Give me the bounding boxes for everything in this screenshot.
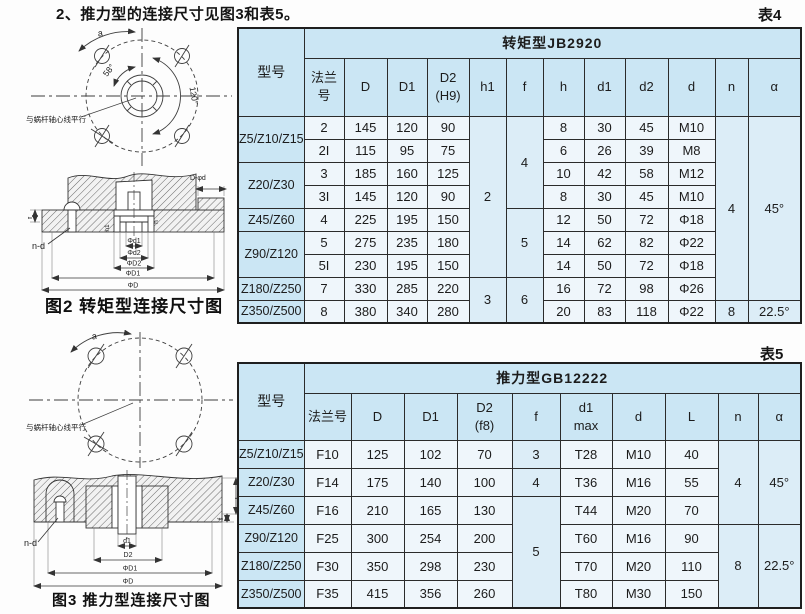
column-header: h bbox=[543, 58, 584, 116]
data-cell: 90 bbox=[665, 524, 718, 552]
data-cell: 82 bbox=[625, 231, 668, 254]
data-cell: 125 bbox=[427, 162, 469, 185]
column-header: α bbox=[758, 393, 801, 440]
data-cell: 4 bbox=[304, 208, 344, 231]
data-cell: T80 bbox=[560, 580, 612, 608]
data-cell: 26 bbox=[584, 139, 625, 162]
figure2-flange-face-diagram: a 58° 120° 与蜗杆轴心线平行 bbox=[25, 26, 237, 168]
column-header: n bbox=[715, 58, 748, 116]
column-header: D1 bbox=[387, 58, 427, 116]
data-cell: 30 bbox=[584, 116, 625, 139]
worm-axis-note: 与蜗杆轴心线平行 bbox=[26, 114, 86, 124]
data-cell: 195 bbox=[387, 254, 427, 277]
column-header: L bbox=[665, 393, 718, 440]
column-header: d bbox=[668, 58, 715, 116]
table-row: Z5/Z10/Z152145120902483045M10445° bbox=[238, 116, 801, 139]
model-cell: Z45/Z60 bbox=[238, 496, 304, 524]
data-cell: M12 bbox=[668, 162, 715, 185]
dim-D1-label: ΦD1 bbox=[126, 271, 141, 278]
note-leader-line bbox=[81, 403, 133, 425]
document-page: 2、推力型的连接尺寸见图3和表5。 表4 表5 bbox=[0, 0, 805, 614]
spigot-step-label: D-φd bbox=[190, 175, 206, 182]
data-cell: 150 bbox=[427, 254, 469, 277]
data-cell: 72 bbox=[625, 208, 668, 231]
model-cell: Z5/Z10/Z15 bbox=[238, 440, 304, 468]
data-cell: M20 bbox=[612, 552, 665, 580]
column-header: D1 bbox=[404, 393, 457, 440]
data-cell: 45° bbox=[758, 440, 801, 524]
data-cell: Φ22 bbox=[668, 300, 715, 323]
data-cell: 340 bbox=[387, 300, 427, 323]
data-cell: 150 bbox=[427, 208, 469, 231]
worm-axis-note: 与蜗杆轴心线平行 bbox=[26, 422, 86, 432]
n-d-label: n-d bbox=[24, 538, 37, 548]
data-cell: M30 bbox=[612, 580, 665, 608]
dimension-a-label: a bbox=[96, 28, 104, 39]
data-cell: 10 bbox=[543, 162, 584, 185]
model-cell: Z180/Z250 bbox=[238, 277, 304, 300]
note-leader-line bbox=[81, 98, 136, 117]
data-cell: 90 bbox=[427, 185, 469, 208]
data-cell: 100 bbox=[457, 468, 512, 496]
data-cell: 55 bbox=[665, 468, 718, 496]
data-cell: 195 bbox=[387, 208, 427, 231]
data-cell: M16 bbox=[612, 524, 665, 552]
data-cell: 70 bbox=[665, 496, 718, 524]
model-cell: Z90/Z120 bbox=[238, 231, 304, 277]
data-cell: 125 bbox=[351, 440, 404, 468]
data-cell: 275 bbox=[344, 231, 387, 254]
data-cell: 200 bbox=[457, 524, 512, 552]
table4-tag: 表4 bbox=[758, 4, 781, 25]
model-cell: Z350/Z500 bbox=[238, 300, 304, 323]
h1-dim-label: h1 bbox=[104, 224, 111, 232]
dim-D2-label: D2 bbox=[124, 552, 133, 559]
page-title: 2、推力型的连接尺寸见图3和表5。 bbox=[56, 3, 300, 24]
data-cell: 260 bbox=[457, 580, 512, 608]
data-cell: 4 bbox=[512, 468, 560, 496]
data-cell: 5 bbox=[304, 231, 344, 254]
dim-D2-label: ΦD2 bbox=[127, 261, 142, 268]
bolt-hole-icon bbox=[84, 432, 108, 456]
data-cell: 165 bbox=[404, 496, 457, 524]
data-cell: 300 bbox=[351, 524, 404, 552]
data-cell: 42 bbox=[584, 162, 625, 185]
data-cell: 40 bbox=[665, 440, 718, 468]
data-cell: 4 bbox=[506, 116, 543, 208]
data-cell: 280 bbox=[427, 300, 469, 323]
data-cell: 20 bbox=[543, 300, 584, 323]
data-cell: 75 bbox=[427, 139, 469, 162]
data-cell: 130 bbox=[457, 496, 512, 524]
data-cell: 415 bbox=[351, 580, 404, 608]
data-cell: 298 bbox=[404, 552, 457, 580]
data-cell: T70 bbox=[560, 552, 612, 580]
spigot-step bbox=[198, 198, 224, 210]
data-cell: 4 bbox=[715, 116, 748, 300]
data-cell: Φ22 bbox=[668, 231, 715, 254]
data-cell: Φ18 bbox=[668, 208, 715, 231]
table5-tag: 表5 bbox=[760, 343, 783, 364]
data-cell: Φ26 bbox=[668, 277, 715, 300]
data-cell: 98 bbox=[625, 277, 668, 300]
angle-58-arc bbox=[114, 67, 135, 86]
model-cell: Z20/Z30 bbox=[238, 468, 304, 496]
figure3-caption: 图3 推力型连接尺寸图 bbox=[52, 589, 211, 610]
bearing-block-left bbox=[86, 486, 112, 528]
column-header: f bbox=[512, 393, 560, 440]
column-header: d1 bbox=[584, 58, 625, 116]
data-cell: F10 bbox=[304, 440, 351, 468]
data-cell: 3 bbox=[304, 162, 344, 185]
bolt-hole-icon bbox=[176, 344, 192, 368]
data-cell: 220 bbox=[427, 277, 469, 300]
data-cell: 254 bbox=[404, 524, 457, 552]
data-cell: 230 bbox=[457, 552, 512, 580]
model-cell: Z20/Z30 bbox=[238, 162, 304, 208]
data-cell: T60 bbox=[560, 524, 612, 552]
data-cell: 22.5° bbox=[748, 300, 801, 323]
data-cell: 12 bbox=[543, 208, 584, 231]
figure3-flange-face-diagram: a 与蜗杆轴心线平行 bbox=[25, 330, 237, 470]
data-cell: 115 bbox=[344, 139, 387, 162]
data-cell: 50 bbox=[584, 254, 625, 277]
model-cell: Z45/Z60 bbox=[238, 208, 304, 231]
dim-D1-label: ΦD1 bbox=[123, 566, 138, 573]
figure3-section-diagram: d1 D2 ΦD1 ΦD L f n-d bbox=[22, 470, 244, 590]
figure2-caption: 图2 转矩型连接尺寸图 bbox=[45, 292, 223, 317]
data-cell: T28 bbox=[560, 440, 612, 468]
data-cell: 72 bbox=[584, 277, 625, 300]
column-header: h1 bbox=[469, 58, 506, 116]
data-cell: 3 bbox=[469, 277, 506, 323]
data-cell: 210 bbox=[351, 496, 404, 524]
column-header: n bbox=[718, 393, 758, 440]
data-cell: 7 bbox=[304, 277, 344, 300]
data-cell: 235 bbox=[387, 231, 427, 254]
dim-D-label: ΦD bbox=[123, 579, 134, 586]
data-cell: 45 bbox=[625, 116, 668, 139]
data-cell: M10 bbox=[612, 440, 665, 468]
corner-model-header: 型号 bbox=[238, 363, 304, 440]
table-row: Z45/Z60F162101651305T44M2070 bbox=[238, 496, 801, 524]
data-cell: 180 bbox=[427, 231, 469, 254]
column-header: α bbox=[748, 58, 801, 116]
data-cell: T36 bbox=[560, 468, 612, 496]
data-cell: 14 bbox=[543, 231, 584, 254]
model-cell: Z90/Z120 bbox=[238, 524, 304, 552]
data-cell: 14 bbox=[543, 254, 584, 277]
data-cell: 118 bbox=[625, 300, 668, 323]
data-cell: 8 bbox=[543, 185, 584, 208]
data-cell: 58 bbox=[625, 162, 668, 185]
data-cell: 2I bbox=[304, 139, 344, 162]
model-cell: Z350/Z500 bbox=[238, 580, 304, 608]
data-cell: 95 bbox=[387, 139, 427, 162]
bolt-hole-icon bbox=[91, 125, 113, 147]
data-cell: 90 bbox=[427, 116, 469, 139]
data-cell: 30 bbox=[584, 185, 625, 208]
clearance-gap-right bbox=[136, 486, 142, 528]
column-header: D bbox=[344, 58, 387, 116]
data-cell: 8 bbox=[715, 300, 748, 323]
model-cell: Z180/Z250 bbox=[238, 552, 304, 580]
data-cell: 22.5° bbox=[758, 524, 801, 608]
table-row: Z20/Z30F141751401004T36M1655 bbox=[238, 468, 801, 496]
corner-model-header: 型号 bbox=[238, 28, 304, 116]
column-header: D2 (f8) bbox=[457, 393, 512, 440]
data-cell: 120 bbox=[387, 116, 427, 139]
data-cell: 225 bbox=[344, 208, 387, 231]
data-cell: 39 bbox=[625, 139, 668, 162]
data-cell: 5 bbox=[512, 496, 560, 608]
data-cell: 110 bbox=[665, 552, 718, 580]
table-row: Z5/Z10/Z15F10125102703T28M1040445° bbox=[238, 440, 801, 468]
data-cell: 330 bbox=[344, 277, 387, 300]
angle-120-label: 120° bbox=[188, 86, 201, 105]
n-d-label: n-d bbox=[32, 241, 45, 251]
data-cell: 356 bbox=[404, 580, 457, 608]
data-cell: F14 bbox=[304, 468, 351, 496]
torque-type-table: 型号转矩型JB2920法兰 号DD1D2 (H9)h1fhd1d2dnα Z5/… bbox=[237, 27, 802, 324]
data-cell: 2 bbox=[469, 116, 506, 277]
data-cell: 175 bbox=[351, 468, 404, 496]
data-cell: 185 bbox=[344, 162, 387, 185]
dim-d2-label: Φd2 bbox=[127, 250, 140, 257]
f-dim-label: f bbox=[28, 216, 34, 219]
angle-58-label: 58° bbox=[101, 62, 117, 78]
data-cell: 70 bbox=[457, 440, 512, 468]
data-cell: 72 bbox=[625, 254, 668, 277]
data-cell: M10 bbox=[668, 116, 715, 139]
data-cell: 145 bbox=[344, 185, 387, 208]
data-cell: 62 bbox=[584, 231, 625, 254]
column-header: 法兰 号 bbox=[304, 58, 344, 116]
data-cell: M16 bbox=[612, 468, 665, 496]
dim-d1-label: Φd1 bbox=[127, 238, 140, 245]
data-cell: 150 bbox=[665, 580, 718, 608]
bolt-hole-icon bbox=[88, 344, 104, 368]
data-cell: 6 bbox=[543, 139, 584, 162]
data-cell: 2 bbox=[304, 116, 344, 139]
column-header: d1 max bbox=[560, 393, 612, 440]
data-cell: T44 bbox=[560, 496, 612, 524]
data-cell: F30 bbox=[304, 552, 351, 580]
bolt-hole-icon bbox=[175, 125, 190, 147]
dim-D-label: ΦD bbox=[128, 283, 139, 290]
clearance-gap-left bbox=[112, 486, 118, 528]
data-cell: 230 bbox=[344, 254, 387, 277]
data-cell: 8 bbox=[304, 300, 344, 323]
data-cell: F35 bbox=[304, 580, 351, 608]
column-header: D2 (H9) bbox=[427, 58, 469, 116]
h-dim-label: h bbox=[153, 220, 160, 224]
data-cell: 45 bbox=[625, 185, 668, 208]
group-header: 推力型GB12222 bbox=[304, 363, 801, 393]
data-cell: 6 bbox=[506, 277, 543, 323]
data-cell: M20 bbox=[612, 496, 665, 524]
data-cell: M8 bbox=[668, 139, 715, 162]
data-cell: 102 bbox=[404, 440, 457, 468]
data-cell: Φ18 bbox=[668, 254, 715, 277]
data-cell: 16 bbox=[543, 277, 584, 300]
thrust-type-table: 型号推力型GB12222法兰号DD1D2 (f8)fd1 maxdLnα Z5/… bbox=[237, 362, 802, 609]
figure2-section-diagram: Φd1 Φd2 ΦD2 ΦD1 ΦD D-φd f h1 h n-d bbox=[28, 168, 240, 294]
column-header: 法兰号 bbox=[304, 393, 351, 440]
data-cell: 380 bbox=[344, 300, 387, 323]
column-header: d bbox=[612, 393, 665, 440]
data-cell: 140 bbox=[404, 468, 457, 496]
data-cell: 45° bbox=[748, 116, 801, 300]
data-cell: 3I bbox=[304, 185, 344, 208]
column-header: d2 bbox=[625, 58, 668, 116]
bearing-block-right bbox=[142, 486, 168, 528]
data-cell: 160 bbox=[387, 162, 427, 185]
data-cell: 5I bbox=[304, 254, 344, 277]
dim-d1-label: d1 bbox=[123, 538, 131, 545]
model-cell: Z5/Z10/Z15 bbox=[238, 116, 304, 162]
data-cell: 145 bbox=[344, 116, 387, 139]
data-cell: 350 bbox=[351, 552, 404, 580]
data-cell: 4 bbox=[718, 440, 758, 524]
data-cell: F16 bbox=[304, 496, 351, 524]
data-cell: F25 bbox=[304, 524, 351, 552]
data-cell: 50 bbox=[584, 208, 625, 231]
data-cell: M10 bbox=[668, 185, 715, 208]
data-cell: 83 bbox=[584, 300, 625, 323]
data-cell: 120 bbox=[387, 185, 427, 208]
data-cell: 285 bbox=[387, 277, 427, 300]
data-cell: 8 bbox=[543, 116, 584, 139]
column-header: f bbox=[506, 58, 543, 116]
data-cell: 3 bbox=[512, 440, 560, 468]
data-cell: 8 bbox=[718, 524, 758, 608]
bolt-hole-icon bbox=[176, 432, 192, 456]
column-header: D bbox=[351, 393, 404, 440]
data-cell: 5 bbox=[506, 208, 543, 277]
group-header: 转矩型JB2920 bbox=[304, 28, 801, 58]
